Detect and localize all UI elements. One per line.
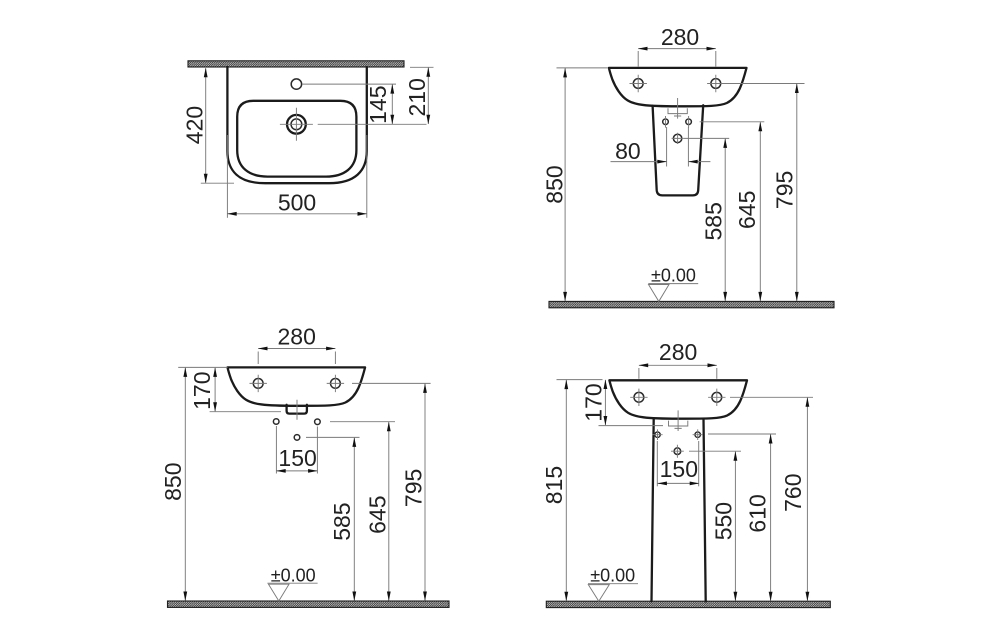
svg-text:585: 585 (329, 502, 355, 540)
svg-text:420: 420 (182, 106, 208, 144)
svg-text:795: 795 (400, 469, 426, 507)
svg-text:145: 145 (365, 86, 391, 124)
svg-text:500: 500 (278, 190, 316, 216)
svg-text:585: 585 (701, 202, 727, 240)
svg-text:760: 760 (780, 474, 806, 512)
svg-text:850: 850 (160, 463, 186, 501)
svg-text:80: 80 (615, 138, 641, 164)
svg-text:795: 795 (771, 171, 797, 209)
svg-text:150: 150 (278, 445, 316, 471)
svg-text:550: 550 (711, 502, 737, 540)
svg-text:280: 280 (659, 339, 697, 365)
svg-text:±0.00: ±0.00 (590, 566, 635, 586)
svg-text:170: 170 (581, 383, 607, 421)
svg-text:280: 280 (278, 324, 316, 350)
svg-text:±0.00: ±0.00 (651, 266, 696, 286)
svg-text:150: 150 (660, 456, 698, 482)
svg-text:610: 610 (745, 494, 771, 532)
svg-text:850: 850 (541, 165, 567, 203)
svg-text:210: 210 (404, 78, 430, 116)
svg-text:815: 815 (541, 466, 567, 504)
svg-text:645: 645 (734, 191, 760, 229)
svg-text:170: 170 (189, 372, 215, 410)
svg-text:280: 280 (661, 24, 699, 50)
svg-text:±0.00: ±0.00 (271, 566, 316, 586)
svg-text:645: 645 (364, 496, 390, 534)
